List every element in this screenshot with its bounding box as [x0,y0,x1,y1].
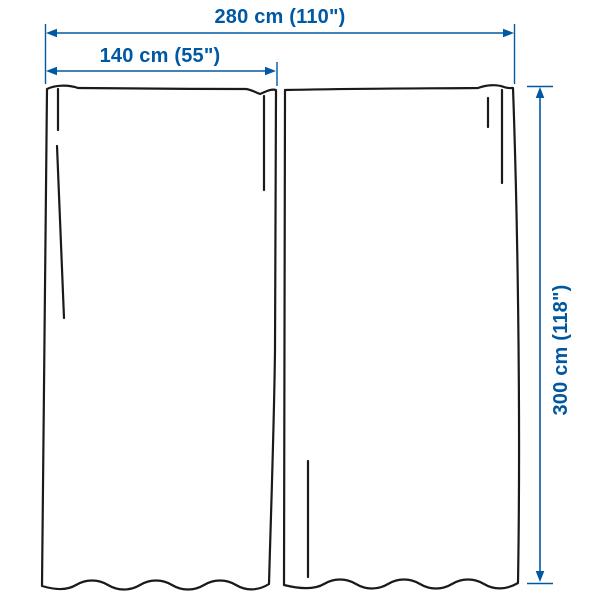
arrow-right-icon [503,29,514,38]
panel-width-label: 140 cm (55") [60,46,260,66]
diagram-canvas [0,0,600,600]
arrow-down-icon [536,571,545,582]
curtain-outlines [42,85,519,589]
curtain-dimension-diagram: 280 cm (110") 140 cm (55") 300 cm (118") [0,0,600,600]
total-width-label: 280 cm (110") [130,7,430,27]
left-curtain-panel [42,86,276,590]
arrow-right-icon [265,67,276,76]
height-label: 300 cm (118") [551,250,571,450]
arrow-up-icon [536,87,545,98]
arrow-left-icon [46,67,57,76]
right-curtain-panel [284,85,519,588]
arrow-left-icon [46,29,57,38]
